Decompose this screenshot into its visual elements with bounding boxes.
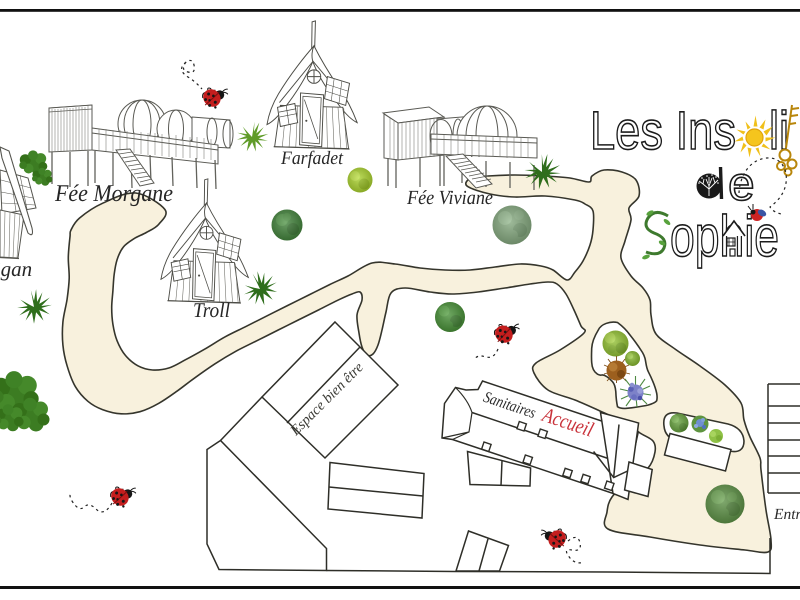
svg-text:Fée Viviane: Fée Viviane bbox=[406, 187, 493, 209]
svg-text:Les Ins: Les Ins bbox=[590, 101, 736, 161]
svg-text:Fée Morgane: Fée Morgane bbox=[54, 181, 173, 207]
svg-text:Entrée: Entrée bbox=[773, 506, 800, 523]
svg-text:Korrigan: Korrigan bbox=[0, 257, 32, 281]
svg-text:li: li bbox=[769, 101, 789, 161]
svg-text:Troll: Troll bbox=[193, 298, 230, 322]
svg-text:Farfadet: Farfadet bbox=[280, 148, 344, 169]
